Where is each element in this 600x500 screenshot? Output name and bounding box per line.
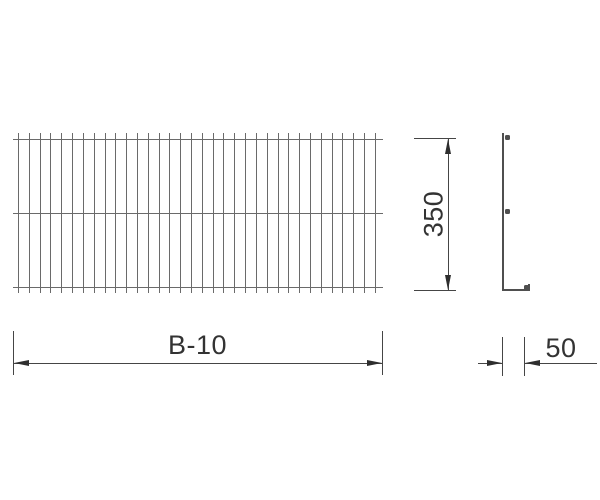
grid-vertical-wire — [169, 133, 170, 293]
side-view-bottom-wire-cross-section-dot — [524, 285, 529, 290]
grid-vertical-wire — [332, 133, 333, 293]
grid-vertical-wire — [105, 133, 106, 293]
grid-vertical-wire — [267, 133, 268, 293]
grid-vertical-wire — [245, 133, 246, 293]
grid-vertical-wires — [18, 133, 376, 293]
grid-vertical-wire — [94, 133, 95, 293]
foot-dim-arrow-right-icon — [487, 360, 502, 366]
grid-vertical-wire — [321, 133, 322, 293]
grid-vertical-wire — [50, 133, 51, 293]
side-view-vertical-wire — [502, 133, 504, 290]
grid-vertical-wire — [191, 133, 192, 293]
grid-vertical-wire — [61, 133, 62, 293]
grid-vertical-wire — [299, 133, 300, 293]
foot-dim-extension-right — [524, 337, 525, 376]
grid-vertical-wire — [278, 133, 279, 293]
drawing-canvas: B-10 350 50 — [0, 0, 600, 500]
grid-vertical-wire — [342, 133, 343, 293]
height-dim-extension-bottom — [414, 290, 456, 291]
grid-vertical-wire — [159, 133, 160, 293]
foot-dim-label: 50 — [532, 335, 590, 362]
grid-vertical-wire — [353, 133, 354, 293]
front-view-grid — [13, 133, 383, 293]
height-dim-label: 350 — [421, 191, 448, 238]
grid-vertical-wire — [180, 133, 181, 293]
grid-vertical-wire — [256, 133, 257, 293]
height-dim-arrow-down-icon — [445, 275, 451, 290]
grid-vertical-wire — [223, 133, 224, 293]
side-view-top-wire-cross-section-dot — [505, 135, 510, 140]
grid-vertical-wire — [375, 133, 376, 293]
grid-vertical-wire — [83, 133, 84, 293]
side-view-middle-wire-cross-section-dot — [505, 209, 510, 214]
width-dim-line — [13, 363, 382, 364]
width-dim-arrow-left-icon — [14, 360, 29, 366]
width-dim-label: B-10 — [13, 332, 382, 359]
grid-vertical-wire — [234, 133, 235, 293]
width-dim-arrow-right-icon — [367, 360, 382, 366]
grid-vertical-wire — [115, 133, 116, 293]
grid-vertical-wire — [29, 133, 30, 293]
foot-dim-extension-left — [502, 337, 503, 376]
grid-vertical-wire — [288, 133, 289, 293]
grid-vertical-wire — [202, 133, 203, 293]
grid-vertical-wire — [40, 133, 41, 293]
grid-vertical-wire — [18, 133, 19, 293]
grid-vertical-wire — [126, 133, 127, 293]
grid-vertical-wire — [137, 133, 138, 293]
grid-vertical-wire — [310, 133, 311, 293]
grid-vertical-wire — [72, 133, 73, 293]
grid-vertical-wire — [213, 133, 214, 293]
grid-vertical-wire — [364, 133, 365, 293]
grid-vertical-wire — [148, 133, 149, 293]
height-dim-arrow-up-icon — [445, 139, 451, 154]
width-dim-extension-right — [382, 331, 383, 375]
